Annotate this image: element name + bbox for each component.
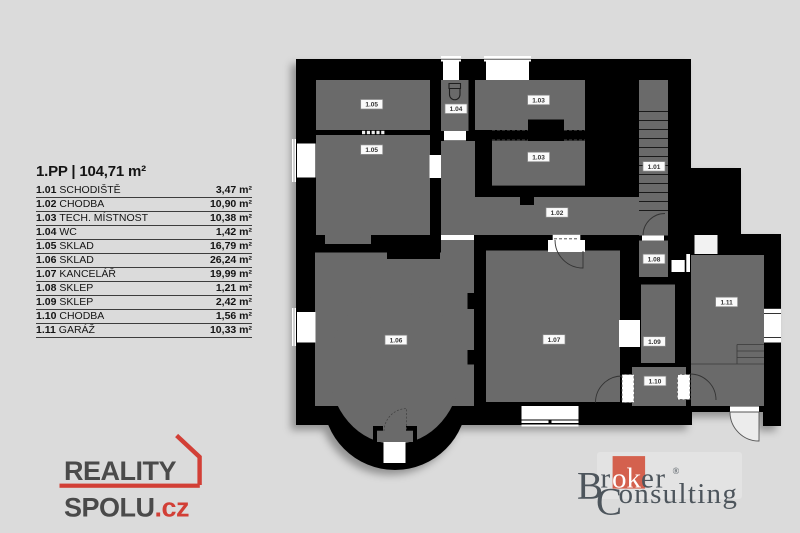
svg-text:onsulting: onsulting bbox=[619, 478, 739, 510]
svg-text:®: ® bbox=[673, 466, 680, 476]
